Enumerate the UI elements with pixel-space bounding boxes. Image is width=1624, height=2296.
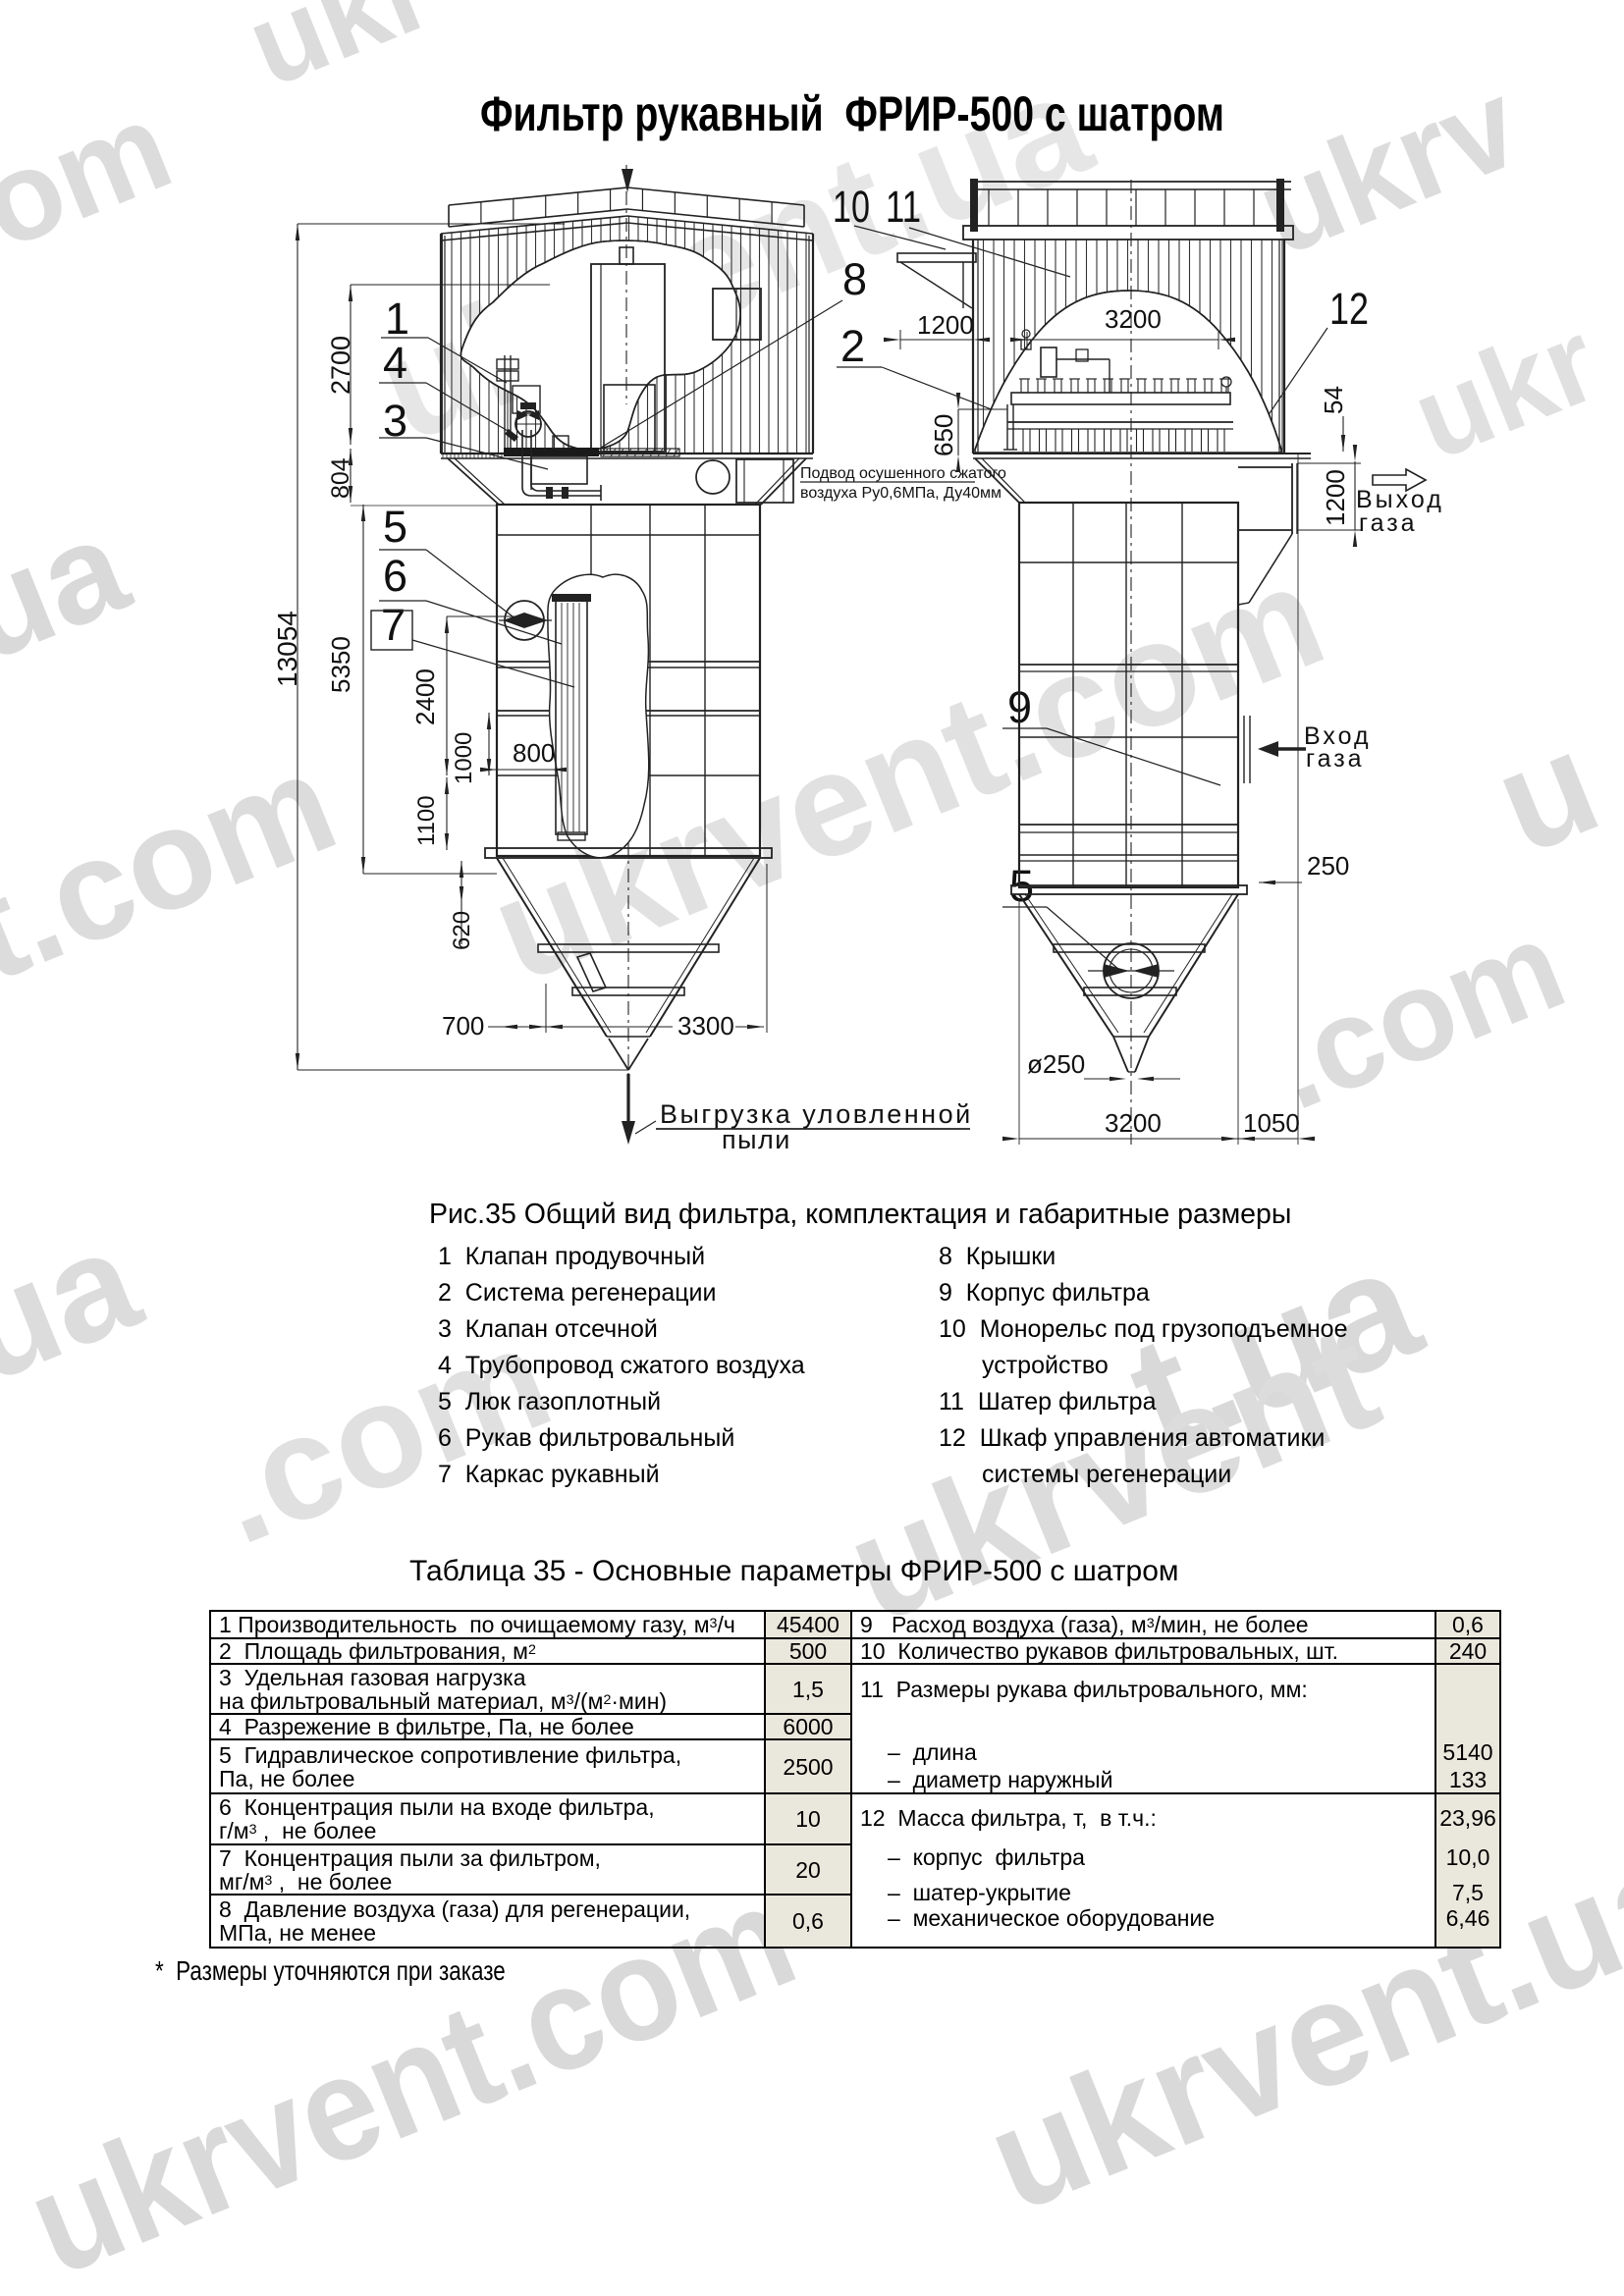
svg-text:Выгрузка уловленной: Выгрузка уловленной — [660, 1099, 973, 1129]
svg-text:804: 804 — [327, 457, 354, 499]
svg-text:12: 12 — [1329, 284, 1369, 334]
svg-text:воздуха Ру0,6МПа, Ду40мм: воздуха Ру0,6МПа, Ду40мм — [800, 485, 1001, 502]
svg-text:650: 650 — [929, 414, 958, 456]
svg-text:7: 7 — [381, 600, 406, 650]
svg-text:1200: 1200 — [1321, 469, 1350, 526]
svg-text:Подвод осушенного сжатого: Подвод осушенного сжатого — [800, 465, 1006, 482]
svg-text:2400: 2400 — [410, 668, 440, 725]
svg-text:800: 800 — [513, 738, 555, 768]
svg-text:1100: 1100 — [413, 795, 440, 846]
svg-text:.com: .com — [1253, 892, 1583, 1137]
svg-text:ukr: ukr — [1396, 294, 1615, 485]
svg-text:2: 2 — [840, 321, 865, 371]
svg-text:газа: газа — [1359, 509, 1418, 537]
svg-text:1050: 1050 — [1243, 1108, 1300, 1138]
svg-text:700: 700 — [442, 1011, 484, 1041]
svg-text:газа: газа — [1306, 745, 1365, 773]
svg-text:54: 54 — [1319, 386, 1348, 414]
svg-text:.com: .com — [0, 75, 189, 315]
svg-text:3200: 3200 — [1105, 1108, 1162, 1138]
svg-text:10: 10 — [833, 182, 870, 232]
svg-text:1200: 1200 — [917, 310, 974, 340]
svg-text:8: 8 — [842, 254, 867, 304]
svg-text:4: 4 — [383, 338, 407, 388]
svg-text:ø250: ø250 — [1027, 1049, 1085, 1079]
svg-text:1: 1 — [385, 294, 409, 344]
svg-text:6: 6 — [383, 551, 407, 601]
svg-text:13054: 13054 — [272, 611, 302, 687]
svg-text:1000: 1000 — [451, 732, 477, 784]
svg-text:620: 620 — [449, 911, 475, 950]
svg-text:ent.com: ent.com — [0, 721, 355, 1073]
svg-text:пыли: пыли — [722, 1125, 791, 1154]
svg-text:5: 5 — [383, 502, 407, 552]
svg-text:3200: 3200 — [1105, 304, 1162, 334]
svg-text:ent.ua: ent.ua — [0, 1196, 160, 1512]
svg-text:5350: 5350 — [326, 636, 355, 693]
svg-text:.ua: .ua — [0, 487, 147, 705]
svg-text:250: 250 — [1307, 851, 1349, 881]
svg-text:ukr: ukr — [231, 0, 450, 112]
svg-text:2700: 2700 — [326, 336, 355, 395]
svg-text:3300: 3300 — [677, 1011, 734, 1041]
svg-text:11: 11 — [886, 182, 921, 232]
svg-text:u: u — [1474, 699, 1619, 885]
